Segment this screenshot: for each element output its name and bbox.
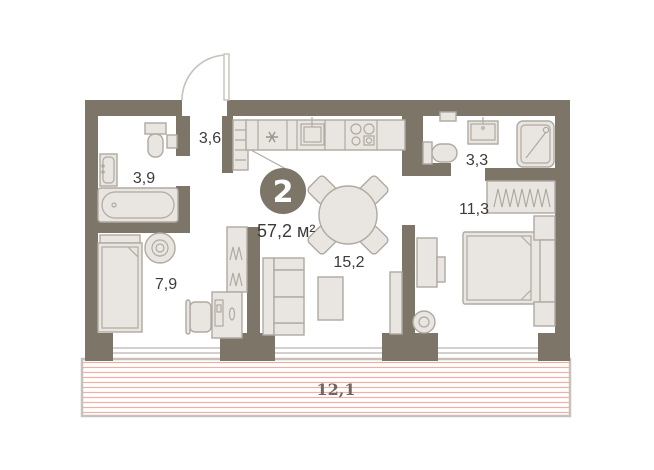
wall-room-living xyxy=(247,227,260,345)
dining-set xyxy=(306,174,389,255)
balcony-area-label: 12,1 xyxy=(317,380,356,399)
wall-cabinet xyxy=(167,135,177,148)
tv-cabinet xyxy=(390,272,402,334)
toilet-bowl xyxy=(148,134,163,157)
headboard xyxy=(540,240,555,302)
vent-box xyxy=(440,112,456,121)
door-leaf xyxy=(224,54,229,100)
coffee-table-icon xyxy=(318,277,343,320)
entrance-door-icon xyxy=(182,54,229,100)
pouf-icon xyxy=(145,233,175,263)
wall-right xyxy=(555,100,570,345)
apartment-badge: 2 57,2 м² xyxy=(257,168,315,241)
cabinet-door-swing xyxy=(251,150,286,169)
window-icon xyxy=(275,348,382,353)
window-icon xyxy=(113,348,220,353)
wall-bathroom2-foot xyxy=(423,163,451,176)
desk-chair-icon xyxy=(186,300,211,334)
bed-icon xyxy=(98,235,142,332)
wardrobe-hangers-icon xyxy=(227,227,247,292)
floor-plan: 12,1 xyxy=(0,0,654,470)
bathroom2-area-label: 3,3 xyxy=(466,152,488,169)
wall-bathroom-right-upper xyxy=(176,116,190,156)
wardrobe-hangers-icon xyxy=(487,181,555,213)
windows xyxy=(113,348,538,353)
nightstand xyxy=(534,216,555,240)
wall-pier-1 xyxy=(85,333,113,361)
bathroom-area-label: 3,9 xyxy=(133,170,155,187)
badge-total-area: 57,2 м² xyxy=(257,221,315,241)
tv-stand-icon xyxy=(417,238,445,287)
bathroom-2: 3,3 xyxy=(423,117,554,169)
desk-icon xyxy=(212,292,242,338)
wall-top-right xyxy=(227,100,570,116)
wall-bathroom2-bottom xyxy=(485,168,570,181)
hallway-area-label: 3,6 xyxy=(199,130,221,147)
living-area-label: 15,2 xyxy=(333,254,364,271)
door-swing-arc xyxy=(182,55,227,100)
room-small: 7,9 xyxy=(98,227,247,338)
toilet-icon xyxy=(423,142,432,164)
toilet-bowl xyxy=(432,144,457,162)
balcony: 12,1 xyxy=(82,359,570,416)
wall-kitchen-left xyxy=(222,116,233,173)
wall-top-left xyxy=(85,100,182,116)
wall-pier-4 xyxy=(538,333,570,361)
double-bed-icon xyxy=(463,216,555,326)
sofa-icon xyxy=(263,258,304,335)
floor-plan-canvas: 12,1 xyxy=(0,0,654,470)
bathroom-1: 3,9 xyxy=(98,123,178,222)
badge-rooms-count: 2 xyxy=(273,175,294,210)
dining-table-icon xyxy=(319,186,377,244)
tv xyxy=(437,257,445,282)
bedroom: 11,3 xyxy=(413,181,555,333)
toilet-icon xyxy=(145,123,166,134)
nightstand xyxy=(534,302,555,326)
bedroom-area-label: 11,3 xyxy=(459,201,489,218)
shower-icon xyxy=(517,121,554,167)
room-small-area-label: 7,9 xyxy=(155,276,177,293)
wall-living-bedroom xyxy=(402,225,415,345)
plant-icon xyxy=(413,311,435,333)
window-icon xyxy=(438,348,538,353)
